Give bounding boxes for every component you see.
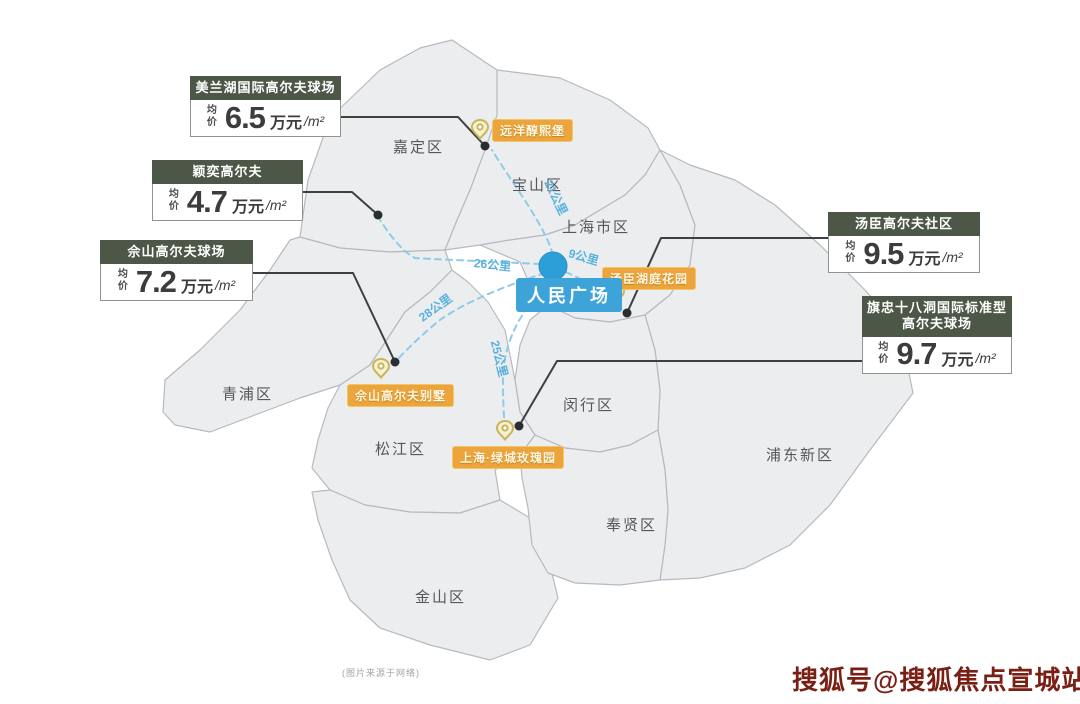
price-value: 4.7 bbox=[187, 186, 227, 217]
dot-tangchen bbox=[623, 309, 632, 318]
callout-title: 汤臣高尔夫社区 bbox=[828, 212, 980, 236]
price-value: 6.5 bbox=[225, 102, 265, 133]
district-label-pudong: 浦东新区 bbox=[766, 444, 834, 465]
dot-qizhong bbox=[515, 422, 524, 431]
callout-qizhong: 旗忠十八洞国际标准型高尔夫球场 均价 9.7 万元 /m² bbox=[862, 296, 1012, 374]
callout-tangchen: 汤臣高尔夫社区 均价 9.5 万元 /m² bbox=[828, 212, 980, 273]
district-label-songjiang: 松江区 bbox=[375, 438, 426, 459]
price-unit: 万元 bbox=[908, 245, 940, 269]
callout-yingyi: 颖奕高尔夫 均价 4.7 万元 /m² bbox=[152, 160, 303, 221]
callout-price: 均价 7.2 万元 /m² bbox=[100, 264, 253, 301]
poi-label-yuanyang: 远洋醇熙堡 bbox=[492, 119, 573, 142]
price-per: /m² bbox=[942, 249, 962, 265]
district-shape-jinshan bbox=[312, 490, 558, 660]
district-label-fengxian: 奉贤区 bbox=[606, 514, 657, 535]
callout-price: 均价 6.5 万元 /m² bbox=[190, 100, 341, 137]
peoples-square-label: 人民广场 bbox=[516, 278, 622, 312]
dot-sheshan bbox=[391, 358, 400, 367]
avg-price-label: 均价 bbox=[207, 105, 221, 129]
callout-title: 颖奕高尔夫 bbox=[152, 160, 303, 184]
district-label-jiading: 嘉定区 bbox=[393, 136, 444, 157]
district-shape-minhang bbox=[515, 305, 660, 452]
price-value: 9.7 bbox=[896, 338, 936, 369]
callout-price: 均价 4.7 万元 /m² bbox=[152, 184, 303, 221]
dot-meilanhu bbox=[481, 142, 490, 151]
callout-title: 佘山高尔夫球场 bbox=[100, 240, 253, 264]
dot-yingyi bbox=[374, 211, 383, 220]
callout-sheshan: 佘山高尔夫球场 均价 7.2 万元 /m² bbox=[100, 240, 253, 301]
shanghai-golf-price-map: 美兰湖国际高尔夫球场 均价 6.5 万元 /m² 颖奕高尔夫 均价 4.7 万元… bbox=[0, 0, 1080, 704]
callout-title: 旗忠十八洞国际标准型高尔夫球场 bbox=[862, 296, 1012, 337]
price-per: /m² bbox=[304, 113, 324, 129]
price-per: /m² bbox=[266, 197, 286, 213]
district-label-minhang: 闵行区 bbox=[563, 394, 614, 415]
callout-title: 美兰湖国际高尔夫球场 bbox=[190, 76, 341, 100]
avg-price-label: 均价 bbox=[169, 189, 183, 213]
price-value: 7.2 bbox=[136, 266, 176, 297]
price-per: /m² bbox=[975, 350, 995, 366]
district-label-qingpu: 青浦区 bbox=[222, 383, 273, 404]
price-unit: 万元 bbox=[181, 273, 213, 297]
poi-label-rose-garden: 上海·绿城玫瑰园 bbox=[452, 446, 564, 469]
price-unit: 万元 bbox=[270, 109, 302, 133]
price-unit: 万元 bbox=[232, 193, 264, 217]
watermark-text: 搜狐号@搜狐焦点宣城站 bbox=[792, 660, 1080, 697]
poi-label-sheshan-villa: 佘山高尔夫别墅 bbox=[347, 384, 454, 407]
peoples-square-marker bbox=[539, 252, 567, 280]
avg-price-label: 均价 bbox=[878, 342, 892, 366]
avg-price-label: 均价 bbox=[845, 241, 859, 265]
price-value: 9.5 bbox=[863, 238, 903, 269]
district-label-downtown: 上海市区 bbox=[562, 216, 630, 237]
avg-price-label: 均价 bbox=[118, 269, 132, 293]
price-per: /m² bbox=[215, 277, 235, 293]
callout-meilanhu: 美兰湖国际高尔夫球场 均价 6.5 万元 /m² bbox=[190, 76, 341, 137]
source-note: (图片来源于网络) bbox=[342, 666, 420, 679]
callout-price: 均价 9.5 万元 /m² bbox=[828, 236, 980, 273]
price-unit: 万元 bbox=[941, 346, 973, 370]
callout-price: 均价 9.7 万元 /m² bbox=[862, 337, 1012, 374]
district-label-jinshan: 金山区 bbox=[415, 586, 466, 607]
